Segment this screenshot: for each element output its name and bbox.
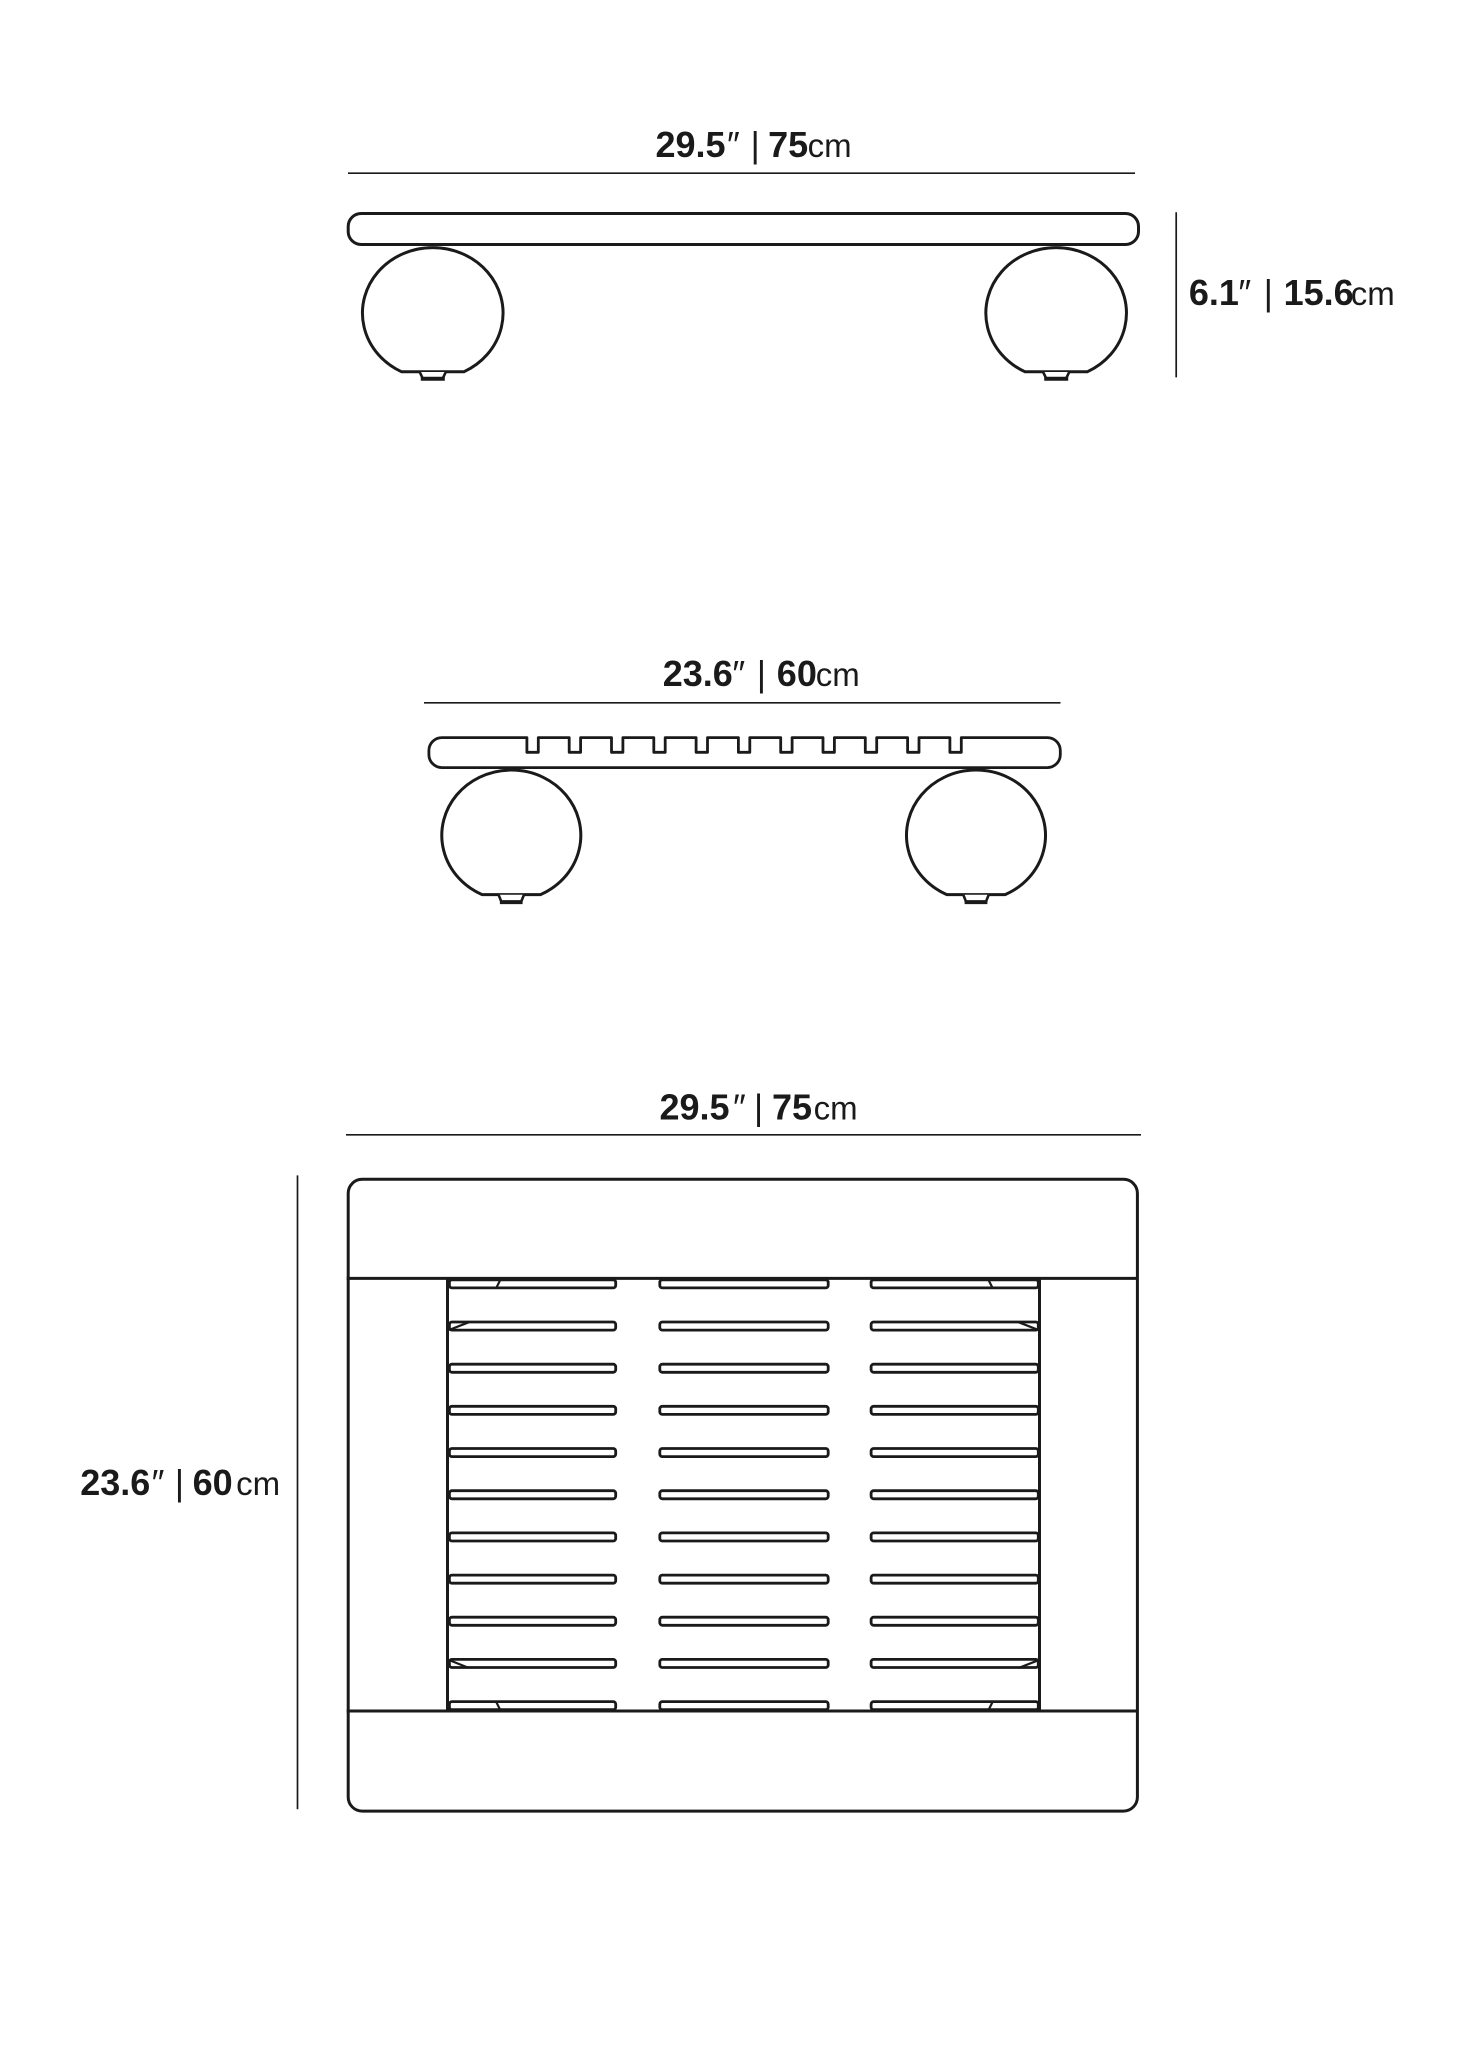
svg-text:29.5″|75cm: 29.5″|75cm <box>656 124 852 165</box>
svg-text:29.5″|75cm: 29.5″|75cm <box>660 1087 858 1128</box>
svg-text:6.1″|15.6cm: 6.1″|15.6cm <box>1189 272 1395 313</box>
svg-text:23.6″|60cm: 23.6″|60cm <box>663 653 860 694</box>
svg-text:23.6″|60cm: 23.6″|60cm <box>80 1462 280 1503</box>
